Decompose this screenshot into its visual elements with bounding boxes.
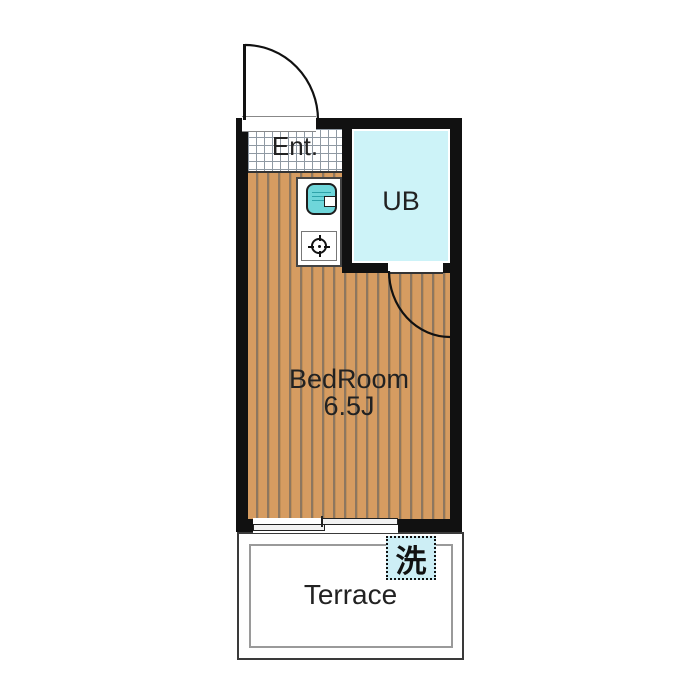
ub-label: UB (352, 187, 450, 215)
entrance-door-opening (242, 116, 316, 132)
bedroom-size-label: 6.5J (248, 392, 450, 420)
stove-burner-icon (301, 231, 337, 261)
ub-door-threshold (388, 272, 443, 274)
sink-icon (306, 183, 337, 215)
entrance-door-leaf (243, 44, 246, 120)
washing-machine-label: 洗 (396, 536, 427, 581)
entrance-door-swing-arc-icon (245, 45, 318, 120)
sliding-window-panel-right (322, 518, 398, 525)
sliding-window-meeting-tick (321, 516, 323, 527)
kitchen-counter (296, 177, 342, 267)
floor-plan: 洗 Ent. UB BedRoom 6.5J Terrace (0, 0, 700, 700)
ub-divider-wall (342, 129, 352, 273)
outer-wall-right (450, 118, 462, 532)
outer-wall-left (236, 118, 248, 532)
sliding-window-panel-left (253, 524, 325, 531)
washing-machine-box: 洗 (386, 536, 436, 580)
entrance-label: Ent. (248, 133, 342, 160)
bedroom-label: BedRoom (248, 365, 450, 393)
sink-faucet-notch (324, 196, 336, 207)
burner-crosshair-icon (311, 238, 327, 254)
terrace-label: Terrace (237, 580, 464, 609)
